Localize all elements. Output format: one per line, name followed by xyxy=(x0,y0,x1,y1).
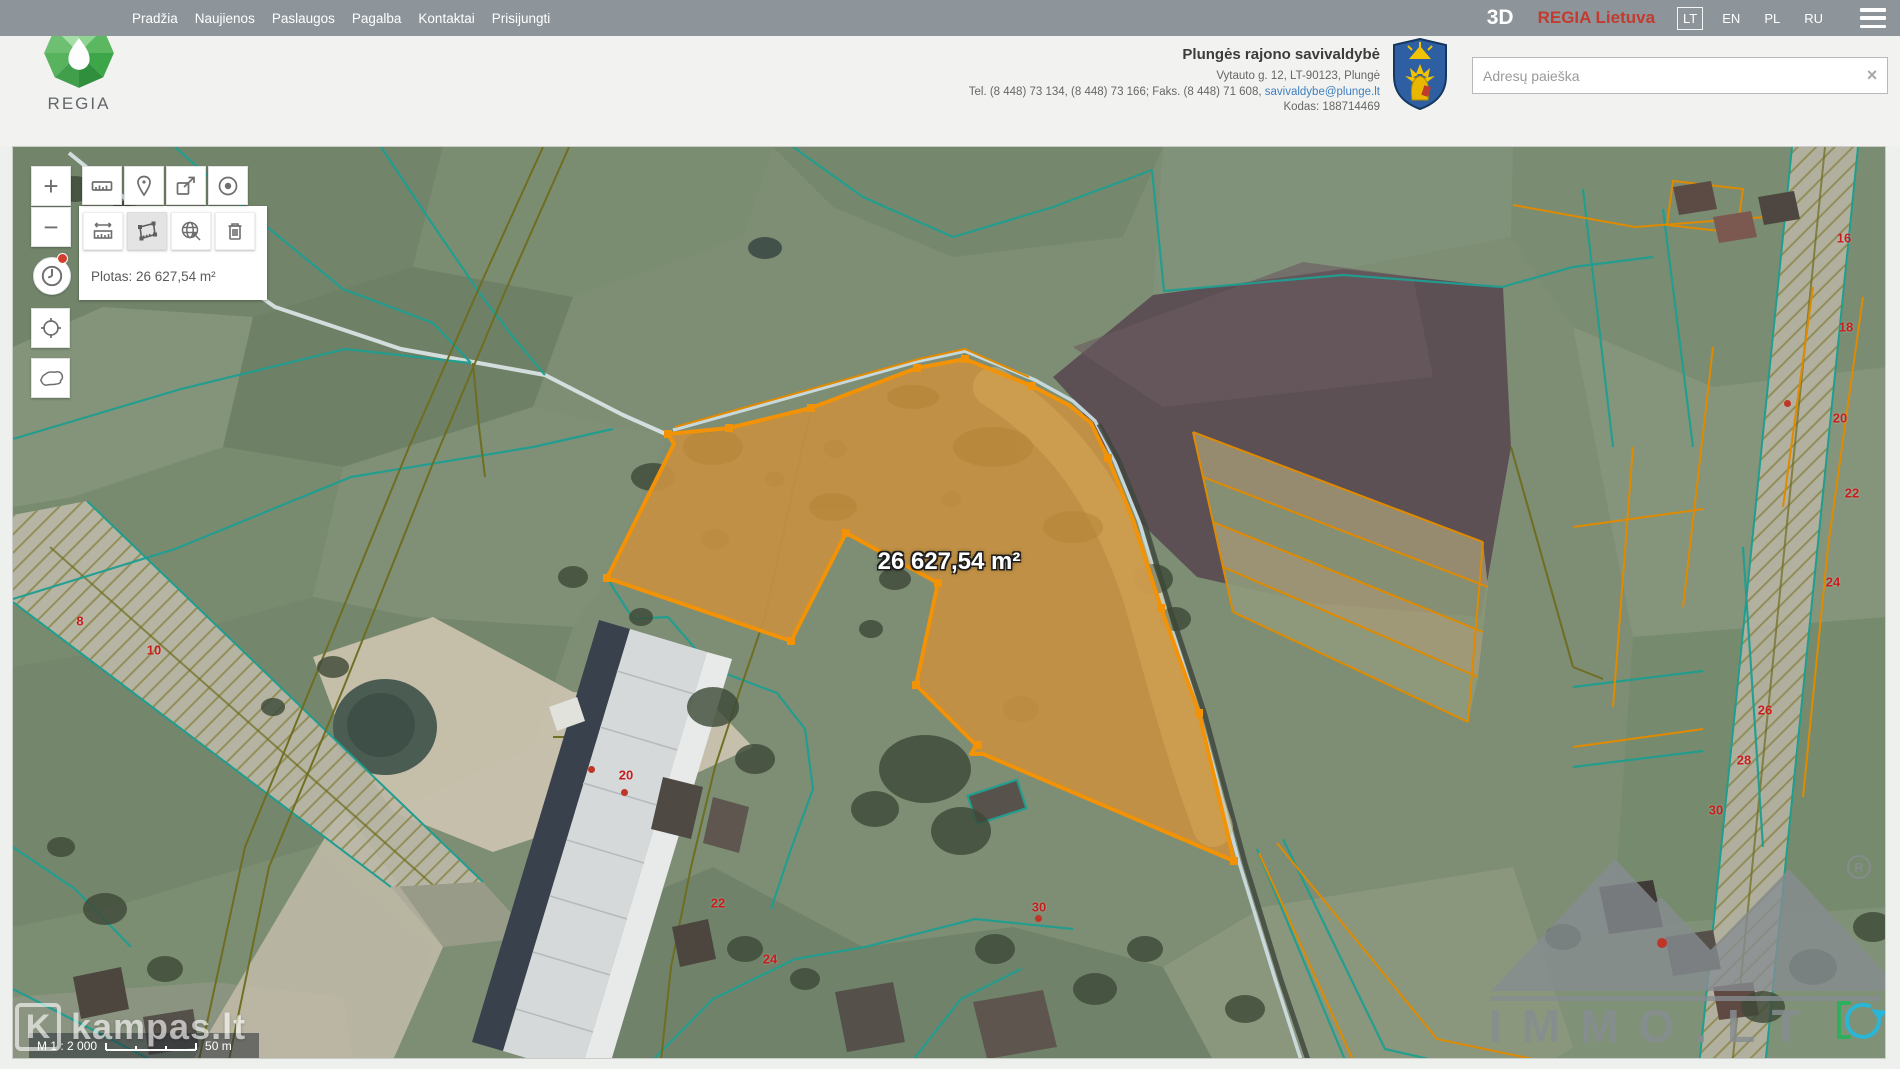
parcel-number: 30 xyxy=(1709,803,1723,818)
plus-icon: + xyxy=(43,173,58,199)
zoom-out-button[interactable]: − xyxy=(31,207,71,247)
nav-naujienos[interactable]: Naujienos xyxy=(195,11,255,26)
nav-kontaktai[interactable]: Kontaktai xyxy=(418,11,474,26)
scale-line xyxy=(105,1040,197,1052)
identify-tool-button[interactable] xyxy=(208,166,248,205)
area-result-text: Plotas: 26 627,54 m² xyxy=(91,269,216,284)
search-clear-icon[interactable]: × xyxy=(1857,65,1887,86)
parcel-number: 24 xyxy=(763,952,777,967)
parcel-number: 24 xyxy=(1826,575,1840,590)
measure-distance-button[interactable] xyxy=(83,212,123,250)
topbar: Pradžia Naujienos Paslaugos Pagalba Kont… xyxy=(0,0,1900,36)
marker-tool-button[interactable] xyxy=(124,166,164,205)
municipality-code: Kodas: 188714469 xyxy=(969,100,1380,116)
address-search: × xyxy=(1472,57,1888,94)
search-input[interactable] xyxy=(1473,68,1857,84)
map-viewport[interactable]: 26 627,54 m² 8 10 16 18 20 22 24 26 28 3… xyxy=(12,146,1886,1059)
lang-ru[interactable]: RU xyxy=(1799,8,1828,29)
red-marker-dot xyxy=(1657,938,1667,948)
red-marker-dot xyxy=(621,789,628,796)
parcel-number: 18 xyxy=(1839,320,1853,335)
map-canvas[interactable] xyxy=(13,147,1886,1059)
lang-lt[interactable]: LT xyxy=(1677,7,1703,30)
red-marker-dot xyxy=(1035,915,1042,922)
share-tool-button[interactable] xyxy=(166,166,206,205)
menu-burger-icon[interactable] xyxy=(1860,8,1886,28)
minus-icon: − xyxy=(43,214,58,240)
municipality-info: Plungės rajono savivaldybė Vytauto g. 12… xyxy=(969,46,1380,116)
globe-cursor-icon xyxy=(179,219,203,243)
measure-area-button[interactable] xyxy=(127,212,167,250)
red-marker-dot xyxy=(588,766,595,773)
scale-ratio: M 1 : 2 000 xyxy=(37,1039,97,1053)
parcel-number: 28 xyxy=(1737,753,1751,768)
nav-pagalba[interactable]: Pagalba xyxy=(352,11,402,26)
parcel-number: 26 xyxy=(1758,703,1772,718)
area-polygon-icon xyxy=(135,219,159,243)
crosshair-icon xyxy=(39,316,63,340)
lang-pl[interactable]: PL xyxy=(1759,8,1785,29)
map-pin-icon xyxy=(132,174,156,198)
parcel-area-label: 26 627,54 m² xyxy=(878,548,1021,576)
red-marker-dot xyxy=(1784,400,1791,407)
nav-paslaugos[interactable]: Paslaugos xyxy=(272,11,335,26)
parcel-number: 30 xyxy=(1032,900,1046,915)
nav-pradzia[interactable]: Pradžia xyxy=(132,11,178,26)
parcel-number: 20 xyxy=(619,768,633,783)
municipality-contacts: Tel. (8 448) 73 134, (8 448) 73 166; Fak… xyxy=(969,86,1262,98)
municipality-address: Vytauto g. 12, LT-90123, Plungė xyxy=(969,69,1380,85)
lithuania-outline-icon xyxy=(38,366,64,390)
header: REGIA Plungės rajono savivaldybė Vytauto… xyxy=(0,36,1900,146)
trash-icon xyxy=(223,219,247,243)
measure-geodesic-button[interactable] xyxy=(171,212,211,250)
parcel-number: 10 xyxy=(147,643,161,658)
full-extent-button[interactable] xyxy=(31,358,70,398)
geolocate-button[interactable] xyxy=(31,308,70,348)
clock-icon xyxy=(39,263,65,289)
mode-3d-button[interactable]: 3D xyxy=(1487,6,1514,30)
parcel-number: 22 xyxy=(1845,486,1859,501)
parcel-number: 22 xyxy=(711,896,725,911)
parcel-number: 20 xyxy=(1833,411,1847,426)
scale-bar: M 1 : 2 000 50 m xyxy=(29,1033,259,1059)
target-dot-icon xyxy=(216,174,240,198)
main-nav: Pradžia Naujienos Paslaugos Pagalba Kont… xyxy=(132,0,550,36)
page: Pradžia Naujienos Paslaugos Pagalba Kont… xyxy=(0,0,1900,1069)
municipality-email-link[interactable]: savivaldybe@plunge.lt xyxy=(1265,86,1380,98)
notification-badge xyxy=(57,253,68,264)
lang-en[interactable]: EN xyxy=(1717,8,1745,29)
measure-clear-button[interactable] xyxy=(215,212,255,250)
regia-lietuva-link[interactable]: REGIA Lietuva xyxy=(1538,8,1655,28)
parcel-number: 16 xyxy=(1837,231,1851,246)
coat-of-arms xyxy=(1392,38,1448,110)
parcel-number: 8 xyxy=(76,614,83,629)
share-icon xyxy=(174,174,198,198)
measure-tool-button[interactable] xyxy=(82,166,122,205)
nav-prisijungti[interactable]: Prisijungti xyxy=(492,11,551,26)
distance-icon xyxy=(91,219,115,243)
municipality-title: Plungės rajono savivaldybė xyxy=(969,46,1380,63)
scale-distance: 50 m xyxy=(205,1039,232,1053)
zoom-in-button[interactable]: + xyxy=(31,166,71,206)
ruler-icon xyxy=(90,174,114,198)
regia-logo-text: REGIA xyxy=(40,94,118,114)
topbar-right: 3D REGIA Lietuva LT EN PL RU xyxy=(1487,0,1886,36)
